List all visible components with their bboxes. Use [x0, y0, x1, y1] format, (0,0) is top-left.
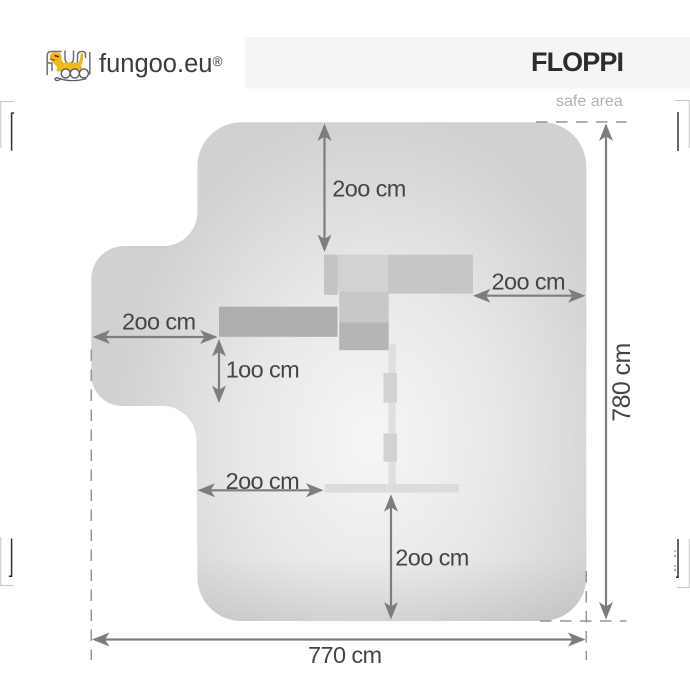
- svg-text:1oo cm: 1oo cm: [226, 357, 299, 383]
- svg-text:770 cm: 770 cm: [308, 642, 381, 668]
- svg-text:®: ®: [213, 54, 223, 69]
- svg-text:2oo cm: 2oo cm: [492, 269, 565, 295]
- svg-text:2oo cm: 2oo cm: [122, 309, 195, 335]
- svg-text:2oo cm: 2oo cm: [226, 468, 299, 494]
- svg-text:780 cm: 780 cm: [608, 343, 636, 421]
- svg-text:fungoo.eu: fungoo.eu: [99, 50, 212, 78]
- svg-text:FLOPPI: FLOPPI: [531, 47, 623, 77]
- svg-text:safe area: safe area: [556, 93, 623, 110]
- svg-text:2oo cm: 2oo cm: [332, 176, 405, 202]
- svg-text:2oo cm: 2oo cm: [395, 545, 468, 571]
